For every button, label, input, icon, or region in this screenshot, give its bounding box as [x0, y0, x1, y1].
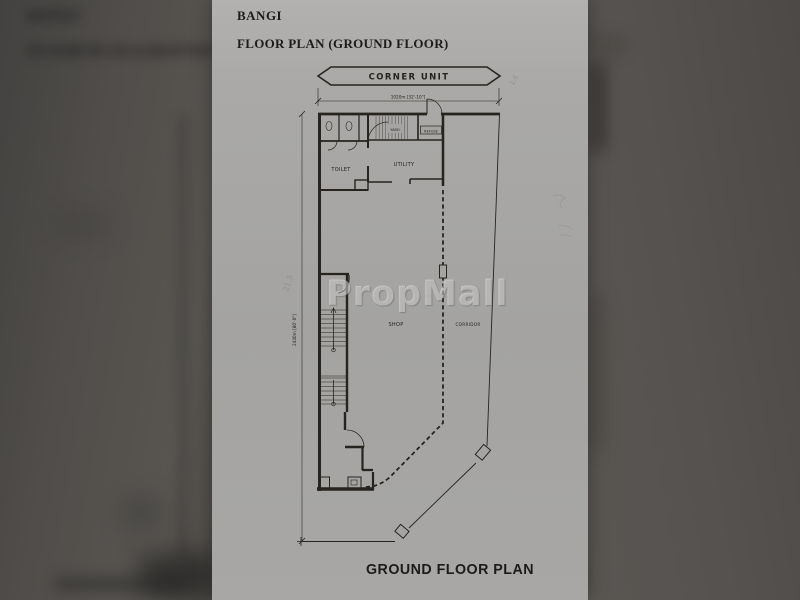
room-label-utility: UTILITY — [394, 162, 415, 168]
yard-door-arc — [368, 122, 388, 142]
room-label-toilet: TOILET — [330, 167, 351, 173]
entrance-door-arc — [347, 430, 364, 447]
pencil-note-top-right: 1.6 — [508, 73, 521, 87]
pencil-scribble — [558, 225, 572, 237]
column-marker — [395, 524, 409, 538]
shopfront-dashed-line — [363, 190, 443, 488]
column-marker — [475, 444, 490, 460]
room-label-refuse: REFUSE — [424, 130, 438, 134]
room-label-corridor: CORRIDOR — [455, 322, 480, 327]
width-dimension-label: 1020m [32'-10"] — [391, 95, 426, 100]
boundary-diagonal — [409, 463, 476, 528]
pencil-scribble — [553, 195, 565, 208]
room-label-yard: YARD — [390, 128, 400, 132]
propmall-watermark: PropMall — [326, 274, 508, 314]
banner-label: CORNER UNIT — [369, 73, 450, 83]
pencil-note-left: 21.3 — [281, 274, 295, 293]
depth-dimension-label: 2440m [80'-0"] — [292, 314, 297, 346]
room-label-shop: SHOP — [388, 322, 403, 328]
photo-viewer: BANGI FLOOR PLAN (GROUND FLOOR) BANGI FL… — [0, 0, 800, 600]
